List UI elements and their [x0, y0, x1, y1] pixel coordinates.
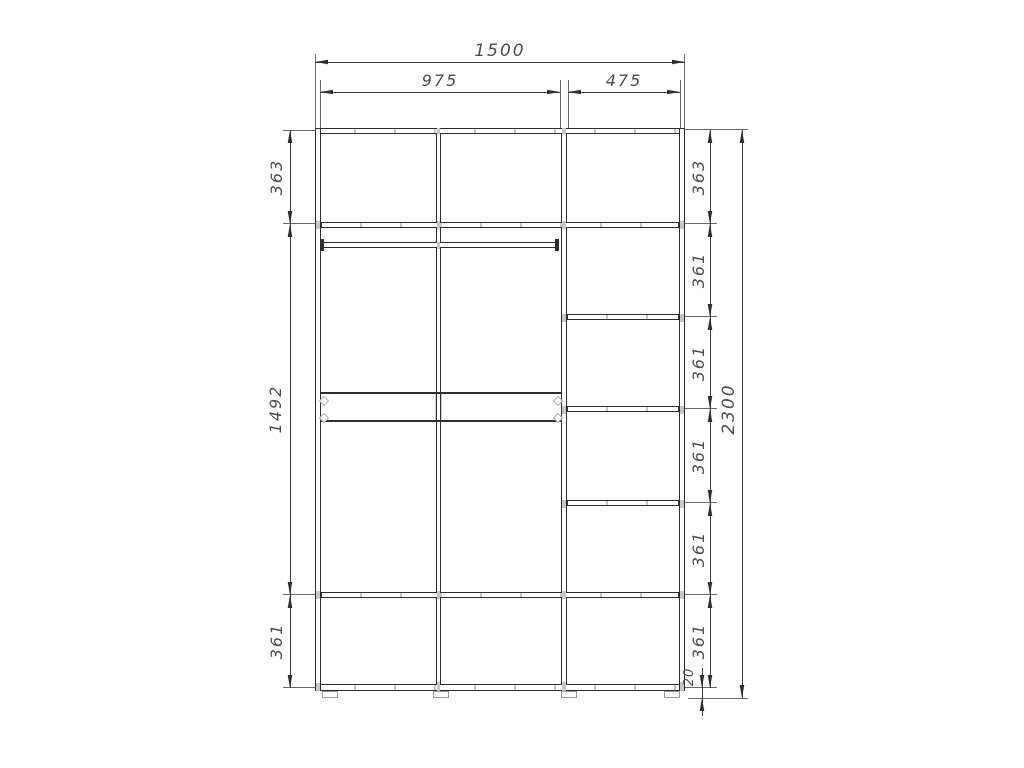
hanging-rod	[322, 242, 558, 248]
dimension-line-total-width	[315, 62, 685, 63]
extension-line	[684, 54, 685, 128]
joint-marker	[316, 591, 320, 599]
cabinet-top-panel	[315, 128, 685, 134]
cabinet-foot	[433, 691, 449, 698]
dim-label-right-2: 361	[690, 222, 708, 318]
dim-label-left-upper: 363	[268, 129, 286, 225]
extension-line	[283, 687, 315, 688]
joint-marker	[316, 683, 320, 691]
dim-label-right-width: 475	[576, 72, 672, 90]
right-column-shelf-2	[567, 406, 679, 412]
joint-marker	[562, 682, 566, 691]
bottom-shelf	[321, 592, 679, 598]
extension-line	[568, 80, 569, 128]
dim-label-right-3: 361	[690, 315, 708, 411]
joint-marker	[437, 128, 440, 134]
right-column-shelf-3	[567, 500, 679, 506]
drawing-canvas: { "dimensions": { "top": { "total_width"…	[0, 0, 1024, 768]
joint-marker	[562, 221, 566, 229]
hanging-rod-right-bracket	[555, 239, 559, 251]
cabinet-foot	[322, 691, 338, 698]
dimension-line-right-width	[568, 92, 680, 93]
middle-band-top-edge	[321, 392, 561, 394]
extension-line	[560, 80, 561, 128]
dim-label-right-1: 363	[690, 129, 708, 225]
right-column-shelf-1	[567, 314, 679, 320]
dim-label-left-lower: 361	[268, 593, 286, 689]
dim-label-right-4: 361	[690, 408, 708, 504]
cabinet-bottom-panel	[315, 684, 685, 691]
joint-marker	[680, 221, 684, 229]
joint-marker	[437, 591, 440, 599]
extension-line	[315, 54, 316, 128]
cabinet-foot	[664, 691, 680, 698]
top-shelf	[321, 222, 679, 228]
joint-marker	[562, 406, 566, 414]
middle-band-bottom-edge	[321, 420, 561, 422]
joint-marker	[680, 500, 684, 508]
dim-label-left-width: 975	[392, 72, 488, 90]
dim-label-left-middle: 1492	[267, 361, 285, 457]
extension-line	[680, 80, 681, 128]
joint-marker	[562, 128, 566, 134]
joint-marker	[562, 314, 566, 322]
dimension-line-left-chain	[290, 130, 291, 688]
dimension-arrowheads	[0, 0, 1024, 768]
cabinet-foot	[561, 691, 577, 698]
dim-label-total-width: 1500	[452, 42, 548, 60]
joint-marker	[680, 406, 684, 414]
dimension-line-left-width	[320, 92, 560, 93]
joint-marker	[562, 500, 566, 508]
dim-label-base-height: 20	[681, 629, 699, 725]
left-section-divider-panel	[436, 133, 441, 684]
dimension-line-total-height	[742, 130, 743, 698]
dim-label-total-height: 2300	[720, 361, 738, 457]
joint-marker	[562, 591, 566, 599]
hanging-rod-left-bracket	[320, 239, 324, 251]
joint-marker	[437, 242, 440, 249]
dim-label-right-5: 361	[690, 501, 708, 597]
joint-marker	[680, 314, 684, 322]
joint-marker	[316, 221, 320, 229]
extension-line	[320, 80, 321, 128]
joint-marker	[437, 682, 440, 691]
joint-marker	[437, 221, 440, 229]
cabinet-left-side-panel	[315, 128, 321, 691]
dimension-line-right-chain	[710, 130, 711, 688]
joint-marker	[680, 591, 684, 599]
extension-line	[283, 130, 315, 131]
